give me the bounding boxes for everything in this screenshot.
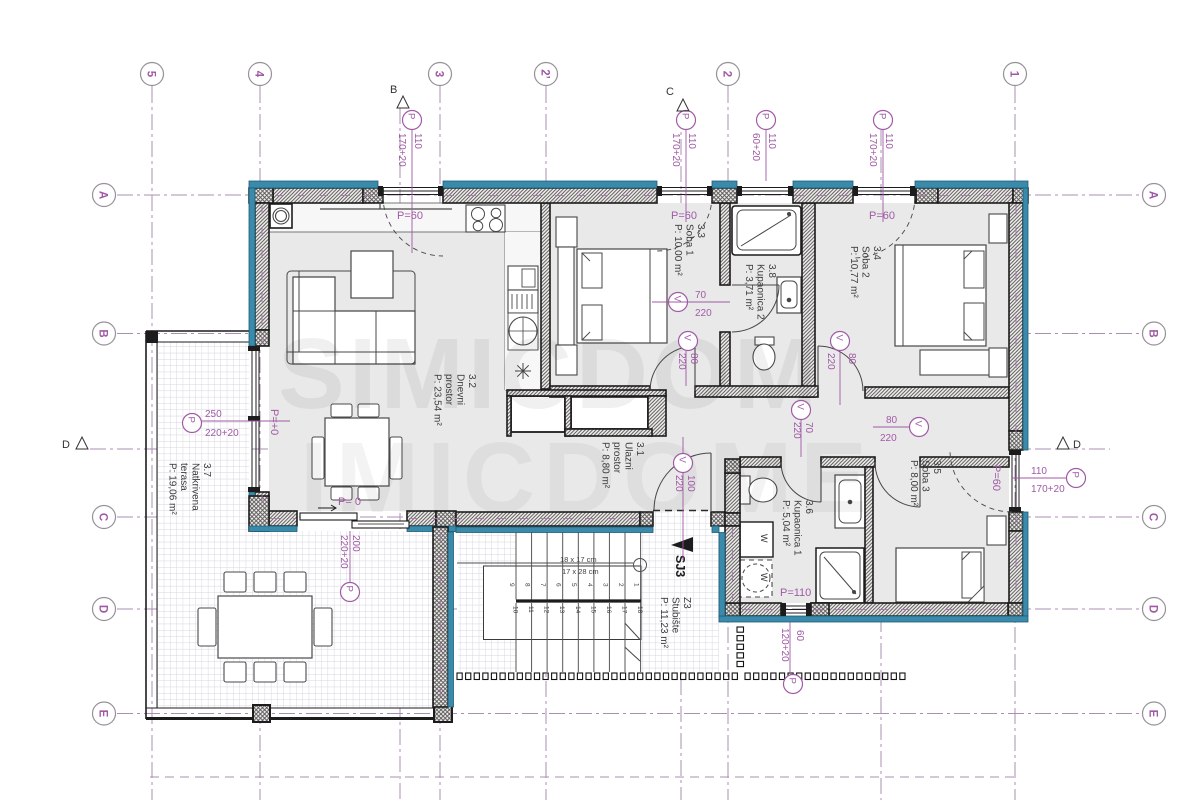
svg-text:7: 7 (539, 583, 546, 587)
svg-text:P: P (186, 417, 197, 423)
svg-text:250: 250 (205, 409, 222, 420)
svg-text:14: 14 (574, 606, 581, 614)
svg-text:5: 5 (145, 71, 157, 78)
svg-text:70: 70 (803, 422, 814, 434)
svg-text:5: 5 (570, 583, 577, 587)
svg-text:9: 9 (508, 583, 515, 587)
svg-text:13: 13 (558, 606, 565, 614)
svg-text:8: 8 (524, 583, 531, 587)
svg-text:P=60: P=60 (990, 465, 1002, 491)
svg-text:1: 1 (1008, 71, 1020, 78)
svg-text:80: 80 (886, 415, 898, 426)
svg-text:100: 100 (685, 475, 696, 492)
svg-text:2: 2 (721, 71, 733, 77)
svg-text:220: 220 (676, 353, 687, 370)
svg-text:170+20: 170+20 (396, 133, 407, 167)
svg-text:6: 6 (555, 583, 562, 587)
svg-text:1: 1 (633, 583, 640, 587)
svg-text:220+20: 220+20 (338, 535, 349, 569)
svg-text:P=60: P=60 (869, 210, 895, 222)
svg-text:P=60: P=60 (397, 210, 423, 222)
svg-text:P: P (1070, 472, 1081, 478)
svg-text:V: V (677, 457, 688, 464)
svg-text:P=110: P=110 (780, 587, 811, 599)
svg-text:P: P (760, 113, 771, 119)
svg-text:110: 110 (766, 133, 777, 149)
svg-text:B: B (1147, 329, 1159, 337)
svg-text:17: 17 (620, 606, 627, 614)
svg-text:4: 4 (586, 583, 593, 587)
svg-text:3: 3 (601, 583, 608, 587)
svg-text:4: 4 (253, 71, 265, 78)
svg-text:V: V (795, 404, 806, 411)
svg-text:200: 200 (350, 535, 361, 552)
svg-text:B: B (97, 329, 109, 337)
svg-text:15: 15 (589, 606, 596, 614)
svg-text:A: A (1147, 191, 1159, 199)
svg-text:220: 220 (673, 475, 684, 492)
svg-text:D: D (97, 605, 109, 613)
svg-text:P: P (406, 113, 417, 119)
svg-text:220: 220 (695, 308, 712, 319)
svg-text:SIMICDOM: SIMICDOM (278, 318, 821, 430)
svg-text:120+20: 120+20 (779, 628, 790, 662)
svg-text:11: 11 (527, 606, 534, 613)
svg-text:18: 18 (636, 606, 643, 614)
svg-text:C: C (97, 513, 109, 521)
svg-text:110: 110 (1031, 466, 1047, 477)
svg-text:V: V (672, 296, 683, 303)
svg-text:80: 80 (688, 353, 699, 365)
svg-text:220: 220 (880, 433, 897, 444)
svg-text:A: A (97, 191, 109, 199)
svg-text:70: 70 (695, 290, 707, 301)
svg-text:C: C (1147, 513, 1159, 521)
svg-text:3: 3 (433, 71, 445, 77)
svg-text:D: D (1073, 439, 1081, 451)
svg-text:110: 110 (686, 133, 697, 149)
svg-text:D: D (62, 439, 70, 451)
svg-text:170+20: 170+20 (867, 133, 878, 167)
svg-text:16: 16 (605, 606, 612, 614)
svg-text:E: E (97, 710, 109, 718)
svg-text:P=+0: P=+0 (268, 409, 280, 435)
svg-text:V: V (834, 335, 845, 342)
svg-text:12: 12 (543, 606, 550, 614)
svg-text:E: E (1147, 710, 1159, 718)
svg-text:60: 60 (794, 630, 805, 642)
svg-text:D: D (1147, 605, 1159, 613)
svg-text:V: V (682, 335, 693, 342)
svg-text:P=60: P=60 (671, 210, 697, 222)
svg-text:170+20: 170+20 (670, 133, 681, 167)
svg-text:170+20: 170+20 (1031, 484, 1065, 495)
svg-text:80: 80 (846, 353, 857, 365)
svg-text:W: W (759, 573, 769, 582)
svg-text:17 x 28 cm: 17 x 28 cm (562, 567, 599, 576)
svg-text:P: P (877, 113, 888, 119)
svg-text:SJ3: SJ3 (673, 555, 687, 577)
svg-text:10: 10 (512, 606, 519, 614)
svg-text:220+20: 220+20 (205, 428, 239, 439)
svg-text:C: C (666, 86, 674, 98)
svg-text:P: P (344, 586, 355, 592)
svg-text:2: 2 (617, 583, 624, 587)
svg-text:110: 110 (412, 133, 423, 149)
svg-text:B: B (390, 84, 397, 96)
svg-text:2’: 2’ (539, 69, 551, 79)
svg-text:220: 220 (825, 353, 836, 370)
svg-text:V: V (913, 421, 924, 428)
svg-text:P= 0: P= 0 (338, 496, 361, 508)
svg-text:W: W (759, 534, 769, 543)
svg-text:P: P (787, 678, 798, 684)
svg-text:18 x 17 cm: 18 x 17 cm (560, 555, 597, 564)
svg-text:220: 220 (791, 422, 802, 439)
svg-text:60+20: 60+20 (750, 133, 761, 162)
svg-text:110: 110 (883, 133, 894, 149)
svg-text:P: P (680, 113, 691, 119)
